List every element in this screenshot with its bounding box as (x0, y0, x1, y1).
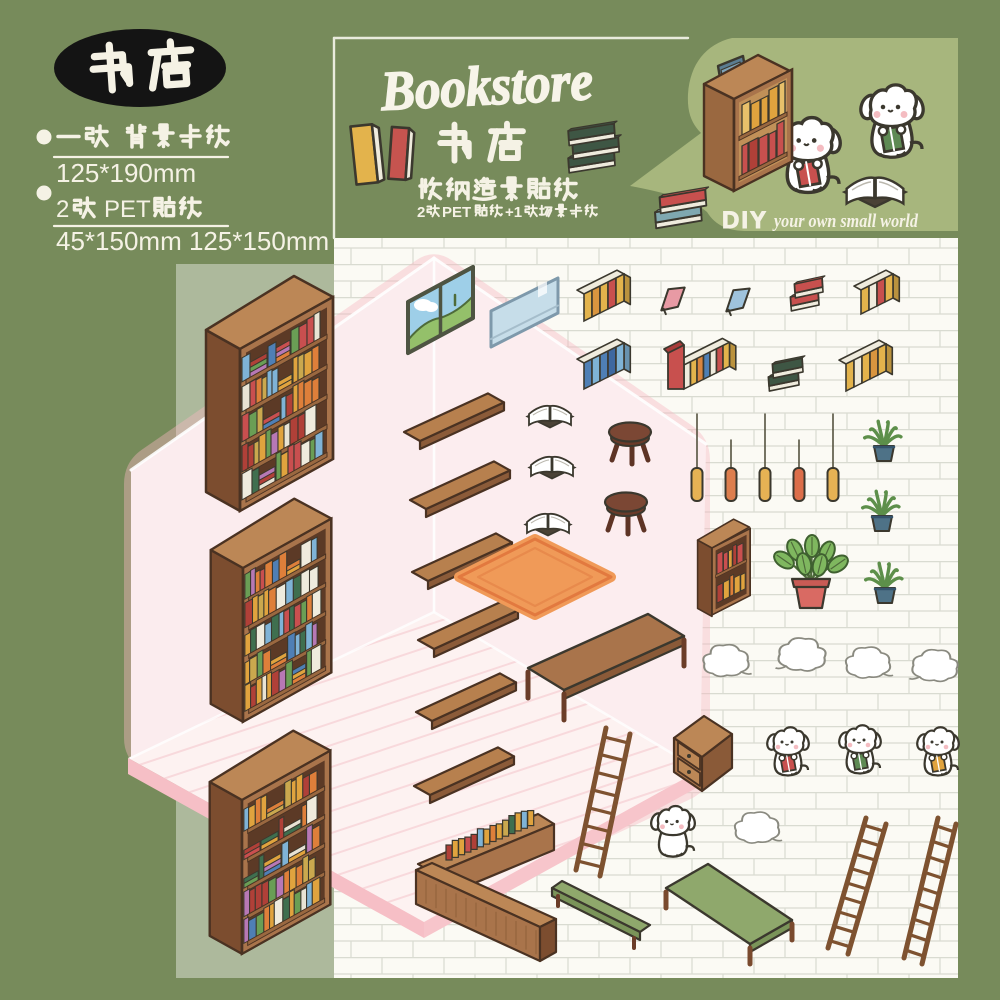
svg-text:PET: PET (104, 196, 151, 223)
svg-text:DIY: DIY (722, 207, 768, 234)
svg-text:45*150mm 125*150mm: 45*150mm 125*150mm (56, 226, 329, 256)
svg-text:125*190mm: 125*190mm (56, 158, 196, 188)
svg-text:your own small world: your own small world (772, 211, 918, 232)
svg-text:PET: PET (442, 204, 471, 221)
svg-text:Bookstore: Bookstore (379, 50, 595, 123)
svg-text:2: 2 (56, 196, 69, 223)
svg-text:2: 2 (417, 204, 425, 221)
svg-text:+1: +1 (505, 204, 522, 221)
